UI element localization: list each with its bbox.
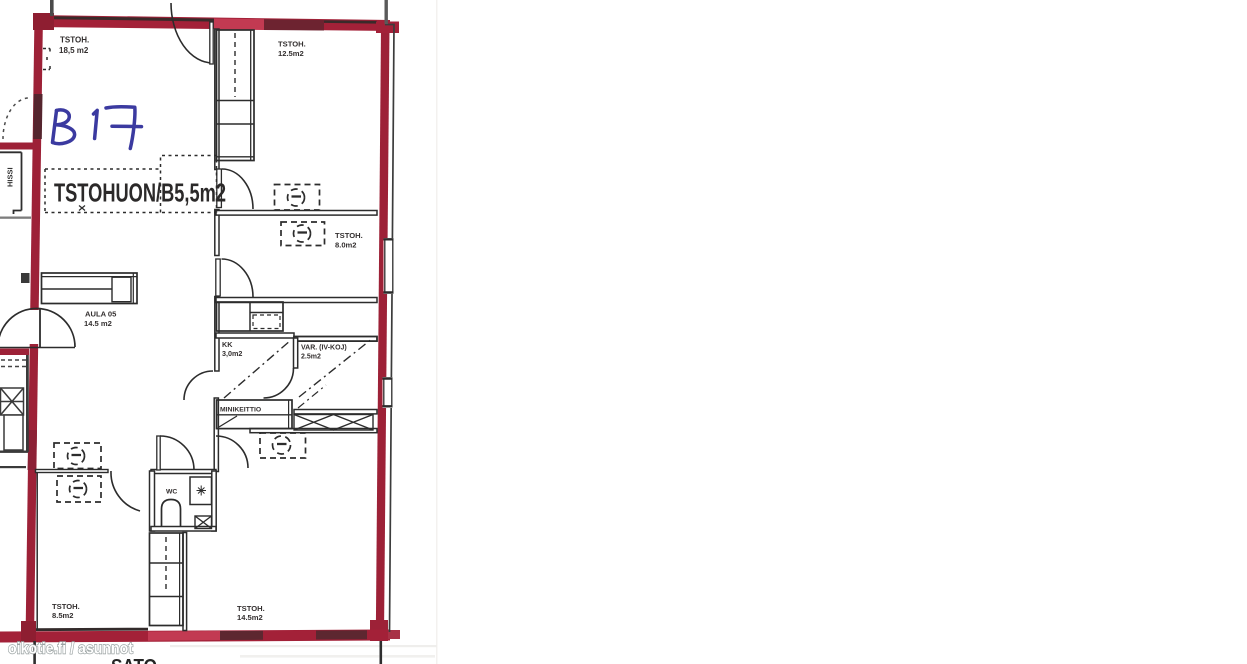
svg-text:8.5m2: 8.5m2 [52,611,74,620]
svg-text:oikotie.fi / asunnot: oikotie.fi / asunnot [8,641,134,658]
svg-text:WC: WC [166,489,177,496]
svg-text:2.5m2: 2.5m2 [301,354,321,361]
svg-text:AULA 05: AULA 05 [85,310,117,319]
svg-text:HISSI: HISSI [6,167,15,187]
svg-text:12.5m2: 12.5m2 [278,49,304,58]
svg-text:MINIKEITTIO: MINIKEITTIO [220,407,261,414]
svg-text:TSTOH.: TSTOH. [60,36,89,45]
svg-text:KK: KK [222,340,233,349]
svg-text:18,5 m2: 18,5 m2 [59,46,89,55]
svg-text:VAR. (IV-KOJ): VAR. (IV-KOJ) [301,345,347,352]
svg-text:3,0m2: 3,0m2 [222,349,242,358]
svg-text:TSTOH.: TSTOH. [335,231,363,240]
svg-text:TSTOH.: TSTOH. [52,602,80,611]
svg-text:14.5 m2: 14.5 m2 [84,319,112,328]
svg-text:TSTOH.: TSTOH. [278,40,306,49]
svg-text:TSTOHUON/B5,5m2: TSTOHUON/B5,5m2 [54,178,226,208]
svg-text:14.5m2: 14.5m2 [237,613,263,622]
svg-text:TSTOH.: TSTOH. [237,604,265,613]
svg-text:8.0m2: 8.0m2 [335,241,357,250]
